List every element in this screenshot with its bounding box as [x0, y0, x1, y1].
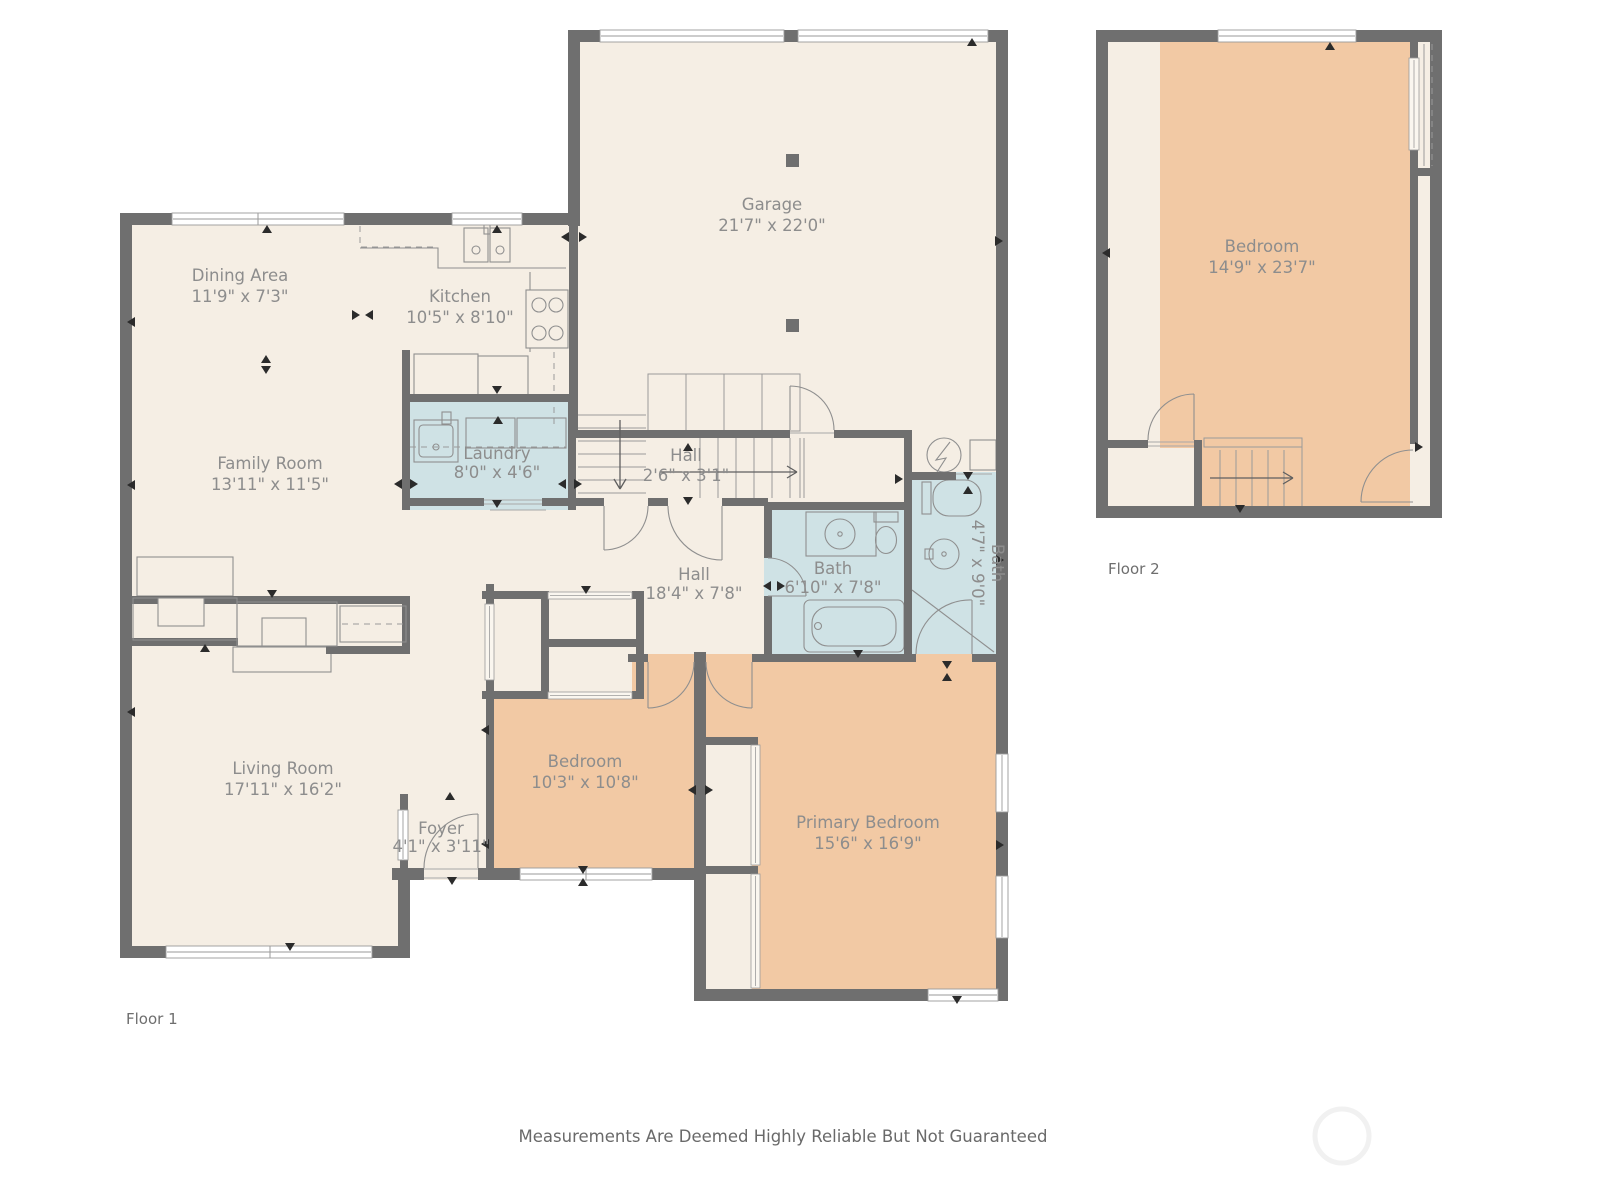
svg-text:10'5" x 8'10": 10'5" x 8'10": [406, 308, 514, 327]
svg-text:4'1" x 3'11": 4'1" x 3'11": [393, 837, 490, 856]
floor-plan-svg: Garage 21'7" x 22'0" Dining Area 11'9" x…: [0, 0, 1600, 1200]
svg-text:10'3" x 10'8": 10'3" x 10'8": [531, 773, 639, 792]
svg-text:Laundry: Laundry: [463, 444, 530, 463]
svg-text:Primary Bedroom: Primary Bedroom: [796, 813, 940, 832]
floor2-caption: Floor 2: [1108, 560, 1160, 578]
floor1-caption: Floor 1: [126, 1010, 178, 1028]
svg-text:Kitchen: Kitchen: [429, 287, 491, 306]
floor-plan-page: Garage 21'7" x 22'0" Dining Area 11'9" x…: [0, 0, 1600, 1200]
svg-text:Foyer: Foyer: [418, 819, 464, 838]
svg-text:2'6" x 3'1": 2'6" x 3'1": [643, 466, 730, 485]
svg-text:6'10" x 7'8": 6'10" x 7'8": [785, 578, 882, 597]
svg-text:Hall: Hall: [678, 565, 710, 584]
svg-text:8'0" x 4'6": 8'0" x 4'6": [454, 463, 541, 482]
svg-text:Bath: Bath: [814, 559, 852, 578]
watermark-logo: [1315, 1109, 1369, 1163]
garage-post: [786, 154, 799, 167]
svg-text:21'7" x 22'0": 21'7" x 22'0": [718, 216, 826, 235]
room-label-laundry: Laundry 8'0" x 4'6": [454, 444, 541, 482]
svg-text:Living Room: Living Room: [232, 759, 333, 778]
disclaimer-text: Measurements Are Deemed Highly Reliable …: [519, 1127, 1048, 1146]
svg-text:Bedroom: Bedroom: [1225, 237, 1300, 256]
garage-post: [786, 319, 799, 332]
svg-text:4'7" x 9'0": 4'7" x 9'0": [968, 520, 987, 607]
svg-text:15'6" x 16'9": 15'6" x 16'9": [814, 834, 922, 853]
svg-text:Bath: Bath: [988, 544, 1007, 582]
svg-text:Family Room: Family Room: [217, 454, 322, 473]
svg-text:Dining Area: Dining Area: [192, 266, 288, 285]
counter-peninsula: [414, 354, 478, 396]
svg-text:14'9" x 23'7": 14'9" x 23'7": [1208, 258, 1316, 277]
floor2-landing-floor: [1108, 448, 1198, 506]
svg-text:Bedroom: Bedroom: [548, 752, 623, 771]
svg-text:17'11" x 16'2": 17'11" x 16'2": [224, 780, 342, 799]
svg-text:13'11" x 11'5": 13'11" x 11'5": [211, 475, 329, 494]
svg-text:Garage: Garage: [742, 195, 802, 214]
stove: [526, 290, 568, 348]
floor1-fills: [120, 30, 1008, 1001]
svg-text:11'9" x 7'3": 11'9" x 7'3": [192, 287, 289, 306]
svg-text:Hall: Hall: [670, 446, 702, 465]
svg-text:18'4" x 7'8": 18'4" x 7'8": [646, 584, 743, 603]
